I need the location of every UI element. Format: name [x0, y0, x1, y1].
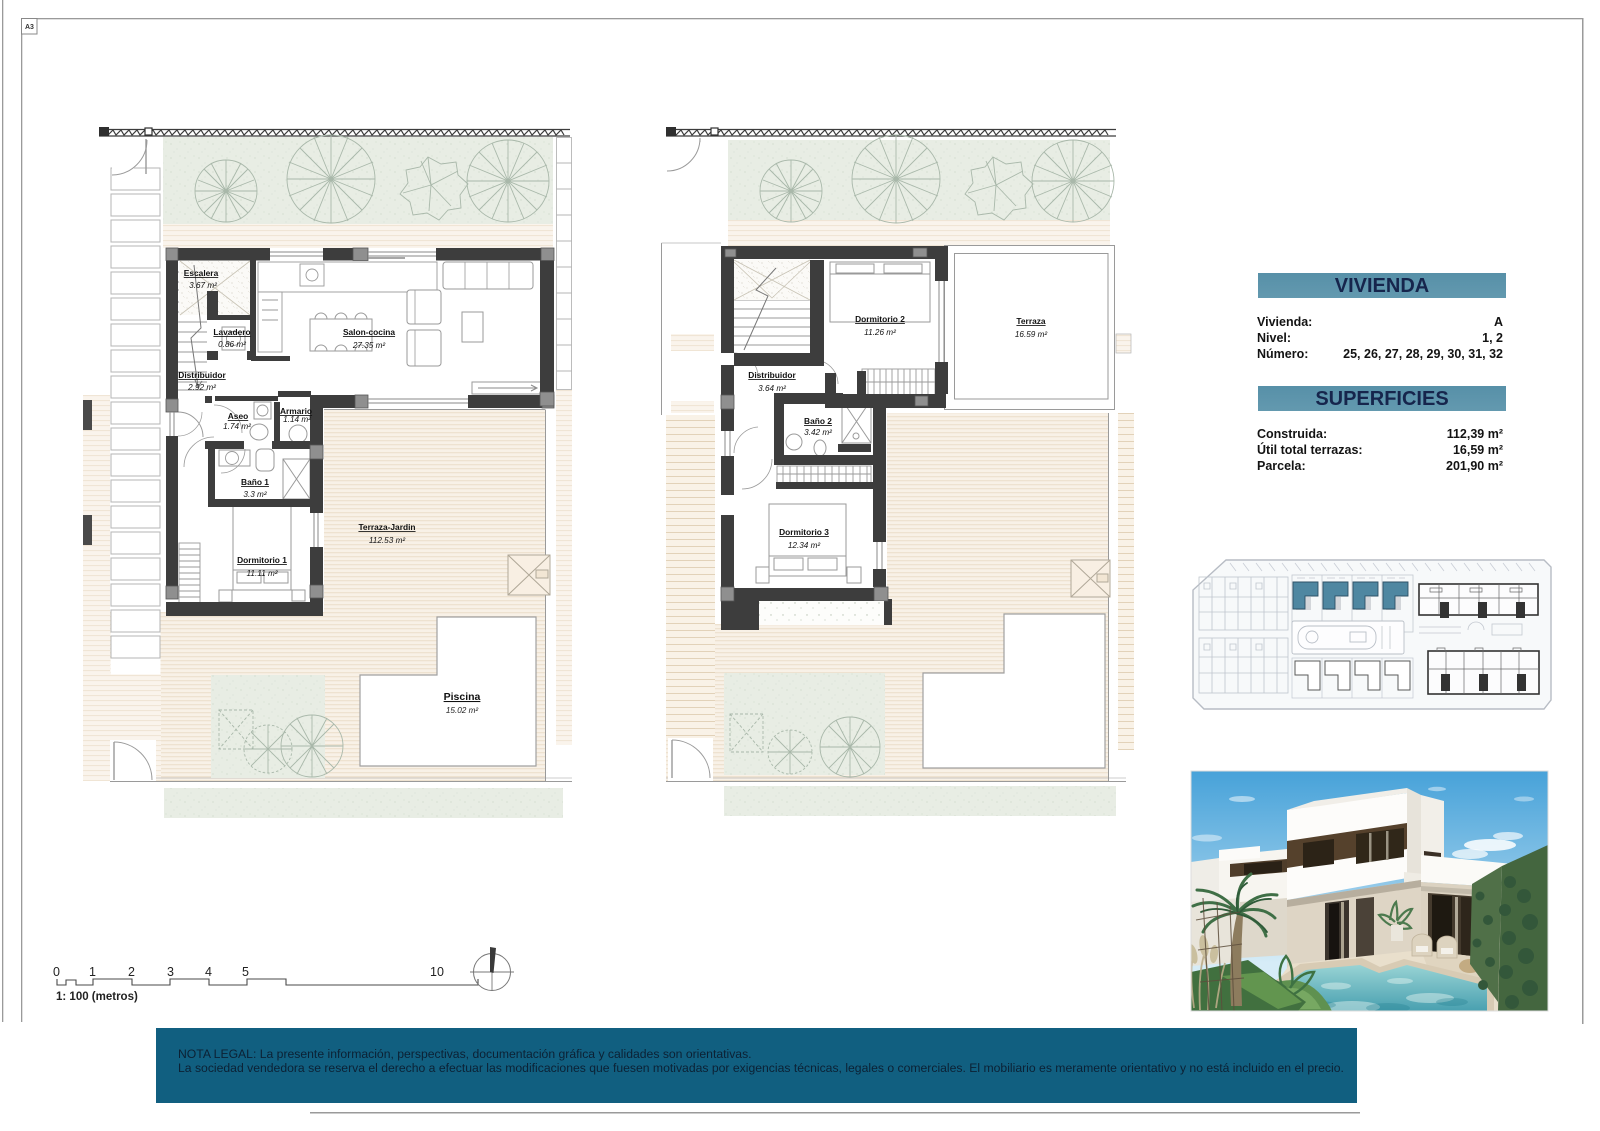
svg-text:0.86 m²: 0.86 m² [218, 340, 246, 349]
svg-text:2.92 m²: 2.92 m² [187, 383, 216, 392]
svg-text:Dormitorio 3: Dormitorio 3 [779, 527, 829, 537]
svg-text:Escalera: Escalera [184, 268, 219, 278]
svg-text:Nivel:: Nivel: [1257, 331, 1291, 345]
svg-text:SUPERFICIES: SUPERFICIES [1315, 388, 1448, 410]
svg-text:112,39 m²: 112,39 m² [1447, 427, 1503, 441]
svg-text:Número:: Número: [1257, 347, 1308, 361]
svg-text:16.59 m²: 16.59 m² [1015, 330, 1048, 339]
svg-text:25, 26, 27, 28, 29, 30, 31, 3: 25, 26, 27, 28, 29, 30, 31, 32 [1343, 347, 1503, 361]
svg-text:12.34 m²: 12.34 m² [788, 541, 821, 550]
svg-text:3.42 m²: 3.42 m² [804, 428, 832, 437]
svg-text:Distribuidor: Distribuidor [178, 370, 226, 380]
svg-text:4: 4 [205, 965, 212, 979]
svg-text:3.64 m²: 3.64 m² [758, 384, 786, 393]
svg-text:10: 10 [430, 965, 444, 979]
svg-text:NOTA LEGAL: La presente inform: NOTA LEGAL: La presente información, per… [178, 1047, 752, 1061]
svg-text:3.3 m²: 3.3 m² [243, 490, 266, 499]
svg-text:15.02 m²: 15.02 m² [446, 706, 479, 715]
svg-text:Baño 2: Baño 2 [804, 416, 832, 426]
svg-text:VIVIENDA: VIVIENDA [1335, 275, 1429, 297]
svg-text:11.11 m²: 11.11 m² [246, 569, 277, 578]
svg-text:Terraza-Jardin: Terraza-Jardin [358, 522, 415, 532]
svg-text:1: 1 [89, 965, 96, 979]
svg-text:Parcela:: Parcela: [1257, 459, 1306, 473]
svg-text:Vivienda:: Vivienda: [1257, 315, 1312, 329]
svg-text:Aseo: Aseo [228, 411, 248, 421]
svg-text:Salon-cocina: Salon-cocina [343, 327, 395, 337]
svg-text:Dormitorio 1: Dormitorio 1 [237, 555, 287, 565]
svg-text:Distribuidor: Distribuidor [748, 370, 796, 380]
svg-text:Piscina: Piscina [444, 691, 481, 703]
svg-text:1.74 m²: 1.74 m² [223, 422, 251, 431]
svg-text:La sociedad vendedora se reser: La sociedad vendedora se reserva el dere… [178, 1061, 1344, 1075]
svg-text:1: 100 (metros): 1: 100 (metros) [56, 991, 138, 1003]
svg-text:Dormitorio 2: Dormitorio 2 [855, 314, 905, 324]
svg-text:27.35 m²: 27.35 m² [352, 341, 386, 350]
svg-text:Terraza: Terraza [1016, 316, 1046, 326]
svg-text:1.14 m²: 1.14 m² [283, 415, 311, 424]
svg-text:A3: A3 [25, 24, 34, 31]
svg-text:Construida:: Construida: [1257, 427, 1327, 441]
svg-text:1, 2: 1, 2 [1482, 331, 1503, 345]
svg-text:Baño 1: Baño 1 [241, 477, 269, 487]
svg-text:201,90 m²: 201,90 m² [1446, 459, 1503, 473]
svg-text:3.67 m²: 3.67 m² [189, 281, 217, 290]
svg-text:11.26 m²: 11.26 m² [864, 328, 896, 337]
svg-text:Útil total terrazas:: Útil total terrazas: [1257, 442, 1363, 457]
svg-text:0: 0 [53, 965, 60, 979]
svg-text:A: A [1494, 315, 1503, 329]
svg-text:112.53 m²: 112.53 m² [369, 536, 406, 545]
svg-text:2: 2 [128, 965, 135, 979]
svg-text:16,59 m²: 16,59 m² [1453, 443, 1503, 457]
svg-text:3: 3 [167, 965, 174, 979]
svg-text:Lavadero: Lavadero [213, 327, 250, 337]
svg-text:5: 5 [242, 965, 249, 979]
